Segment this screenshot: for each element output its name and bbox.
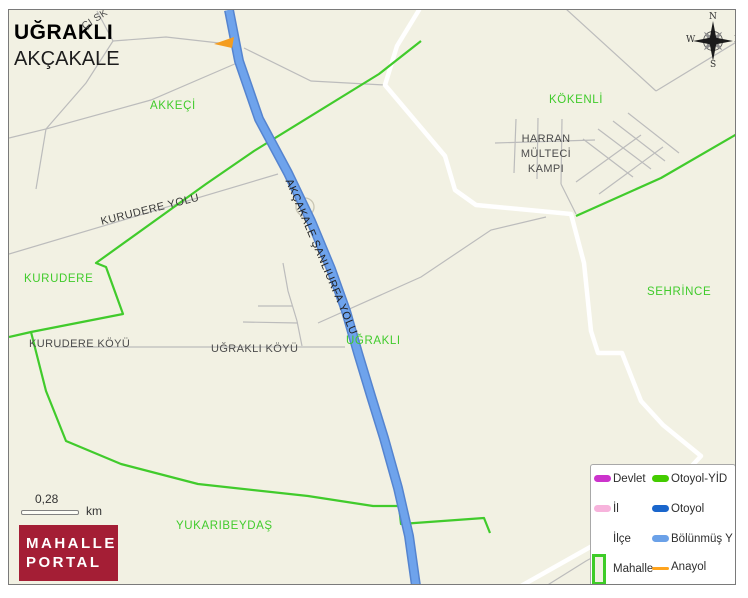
place-label-harran-camp: HARRAN MÜLTECİ KAMPI	[496, 132, 596, 177]
legend-swatch-otoyol	[652, 505, 669, 512]
legend-label-ilce: İlçe	[613, 532, 631, 546]
mahalle-boundary-layer	[9, 41, 736, 533]
page-title: UĞRAKLI	[14, 21, 120, 45]
scale-distance: 0,28	[35, 492, 58, 506]
legend-label-mahalle: Mahalle	[613, 562, 653, 576]
legend-label-anayol: Anayol	[671, 560, 706, 574]
legend-swatch-mahalle	[592, 554, 606, 585]
place-label-kurudere-koyu: KURUDERE KÖYÜ	[29, 338, 130, 350]
compass-east: E	[734, 35, 736, 45]
scale-unit: km	[86, 504, 102, 518]
region-label-kokenli: KÖKENLİ	[549, 94, 603, 106]
compass-west: W	[686, 35, 695, 45]
map-canvas[interactable]: UĞRAKLI AKÇAKALE AKKEÇİ KÖKENLİ KURUDERE…	[8, 9, 736, 585]
legend-label-il: İl	[613, 502, 619, 516]
map-legend: Devlet Otoyol-YİD İl Otoyol İlçe Bölünmü…	[590, 464, 736, 585]
region-label-akkeci: AKKEÇİ	[150, 100, 196, 112]
map-portal-page: UĞRAKLI AKÇAKALE AKKEÇİ KÖKENLİ KURUDERE…	[0, 0, 748, 598]
page-subtitle: AKÇAKALE	[14, 48, 120, 71]
compass-south: S	[710, 60, 716, 70]
map-title-block: UĞRAKLI AKÇAKALE	[14, 21, 120, 71]
legend-label-bolunmus: Bölünmüş Y	[671, 532, 733, 546]
legend-label-devlet: Devlet	[613, 472, 646, 486]
logo-line1: MAHALLE	[26, 534, 118, 553]
legend-swatch-otoyol-yid	[652, 475, 669, 482]
scale-bar	[21, 510, 79, 515]
legend-swatch-bolunmus	[652, 535, 669, 542]
legend-swatch-il	[594, 505, 611, 512]
legend-label-otoyol-yid: Otoyol-YİD	[671, 472, 727, 486]
legend-swatch-devlet	[594, 475, 611, 482]
compass-rose-icon: N E S W	[686, 12, 736, 70]
place-label-ugrakli-koyu: UĞRAKLI KÖYÜ	[211, 343, 298, 355]
region-label-yukaribeydas: YUKARIBEYDAŞ	[176, 520, 273, 532]
compass-north: N	[709, 12, 717, 22]
region-label-sehrince: SEHRİNCE	[647, 286, 711, 298]
legend-label-otoyol: Otoyol	[671, 502, 704, 516]
logo-line2: PORTAL	[26, 553, 118, 572]
region-label-kurudere: KURUDERE	[24, 273, 93, 285]
mahalle-portal-logo: MAHALLE PORTAL	[19, 525, 118, 581]
legend-swatch-anayol	[652, 567, 669, 570]
legend-swatch-ilce	[594, 535, 611, 542]
